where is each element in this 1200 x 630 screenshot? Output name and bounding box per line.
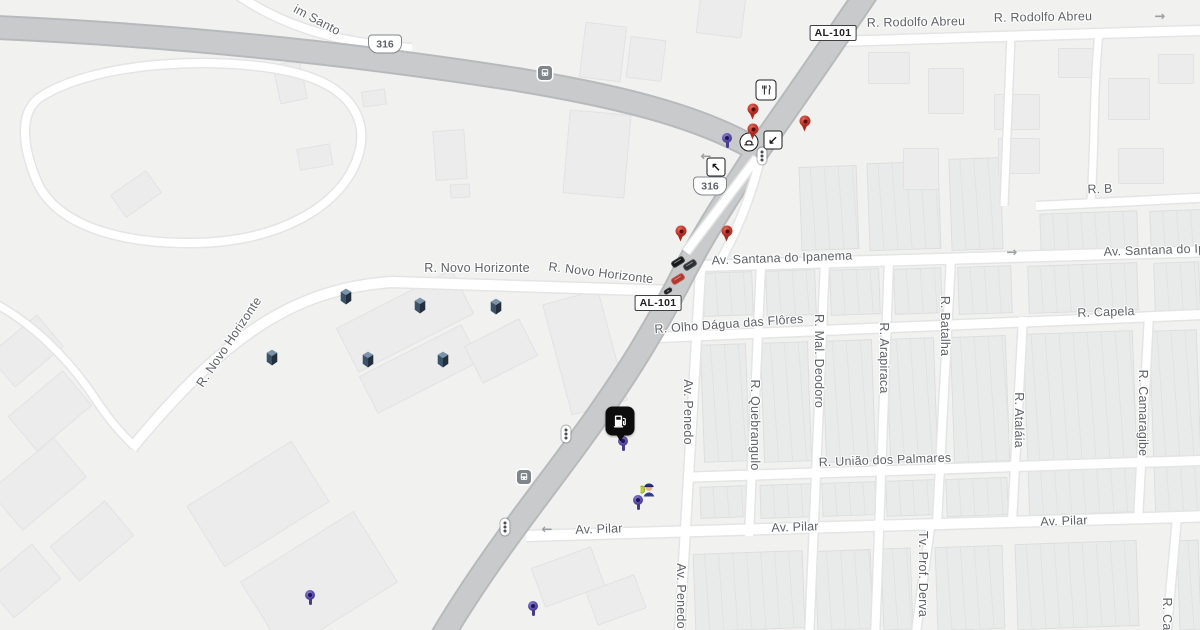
turn-arrow-icon-1: ↙: [764, 131, 783, 150]
map-pin-red-icon-1[interactable]: [748, 104, 759, 115]
one-way-arrow-icon-1: →: [1155, 11, 1166, 24]
building-3d-glyph: [414, 296, 427, 314]
building-3d-icon-3: [490, 297, 503, 320]
map-pin-purple-icon-1[interactable]: [722, 133, 732, 143]
fork-knife-glyph: [760, 84, 773, 97]
building-3d-glyph: [362, 350, 375, 368]
police-officer-glyph: [641, 480, 658, 497]
map-pin-red-icon-2[interactable]: [748, 124, 759, 135]
building-3d-icon-2: [414, 296, 427, 319]
bus-stop-icon-2[interactable]: [517, 470, 531, 484]
restaurant-icon[interactable]: [756, 80, 777, 101]
map-pin-red-icon-4[interactable]: [676, 226, 687, 237]
markers-layer: ↙↖→→←←: [0, 0, 1200, 630]
map-pin-purple-icon-4[interactable]: [528, 601, 538, 611]
police-officer-icon[interactable]: [641, 480, 658, 502]
map-pin-red-icon-5[interactable]: [722, 226, 733, 237]
building-3d-glyph: [340, 287, 353, 305]
map-pin-red-icon-3[interactable]: [800, 116, 811, 127]
one-way-arrow-icon-4: ←: [701, 151, 712, 164]
fuel-pump-icon: [612, 413, 629, 430]
building-3d-icon-4: [266, 348, 279, 371]
building-3d-glyph: [490, 297, 503, 315]
traffic-light-icon-2: [562, 426, 571, 443]
building-3d-icon-6: [437, 350, 450, 373]
gas-station-marker[interactable]: [606, 407, 635, 436]
one-way-arrow-icon-2: →: [1007, 247, 1018, 260]
bus-glyph: [540, 68, 550, 78]
vehicle-icon-4: [663, 286, 673, 295]
bus-stop-icon-1[interactable]: [538, 66, 552, 80]
map-canvas[interactable]: im SantoR. Rodolfo AbreuR. Rodolfo Abreu…: [0, 0, 1200, 630]
building-3d-glyph: [266, 348, 279, 366]
building-3d-icon-5: [362, 350, 375, 373]
building-3d-glyph: [437, 350, 450, 368]
traffic-light-icon-3: [501, 519, 510, 536]
bus-glyph: [519, 472, 529, 482]
map-pin-purple-icon-5[interactable]: [305, 590, 315, 600]
traffic-light-icon-1: [758, 148, 767, 165]
vehicle-icon-3: [670, 272, 686, 285]
one-way-arrow-icon-3: ←: [542, 524, 553, 537]
building-3d-icon-1: [340, 287, 353, 310]
